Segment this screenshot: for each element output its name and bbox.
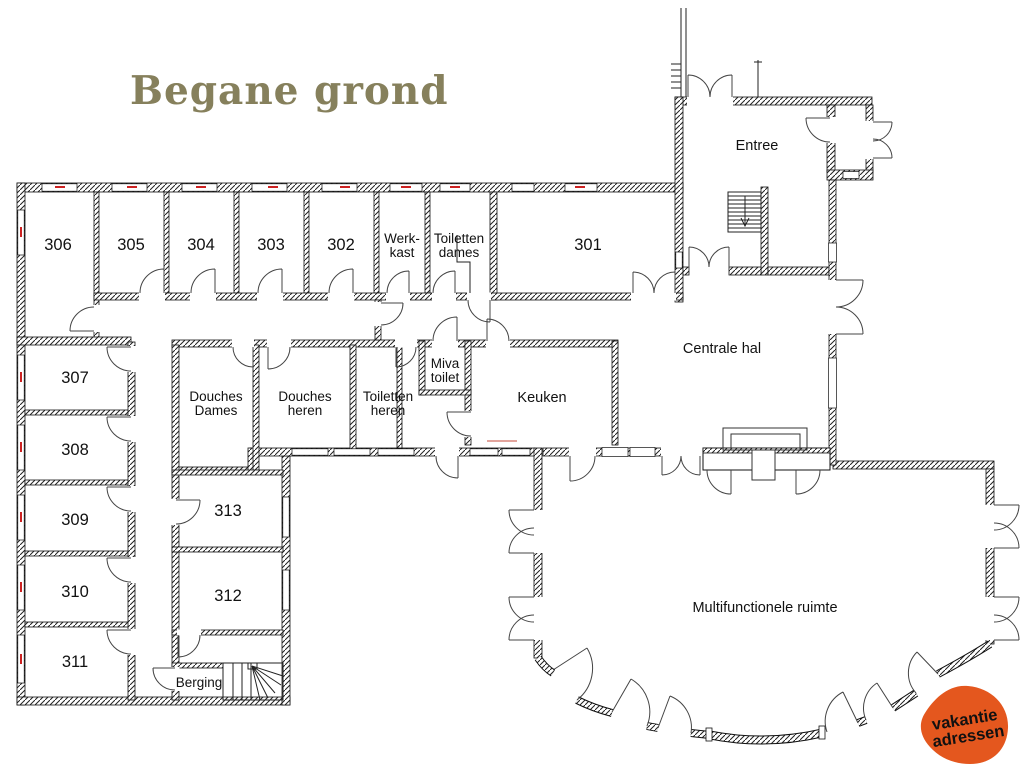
label-entree: Entree — [736, 138, 779, 154]
label-room-310: 310 — [61, 583, 89, 601]
label-room-301: 301 — [574, 236, 602, 254]
room-labels: 306 305 304 303 302 301 Werk- kast Toile… — [44, 138, 837, 690]
label-room-307: 307 — [61, 369, 89, 387]
label-keuken: Keuken — [517, 390, 566, 406]
label-centrale-hal: Centrale hal — [683, 341, 761, 357]
label-toiletten-dames-2: dames — [439, 245, 480, 260]
label-toiletten-dames-1: Toiletten — [434, 231, 484, 246]
label-berging: Berging — [176, 675, 223, 690]
label-room-303: 303 — [257, 236, 285, 254]
window-marks — [21, 187, 585, 664]
label-room-306: 306 — [44, 236, 72, 254]
label-werkkast-1: Werk- — [384, 231, 420, 246]
spiral-staircase — [223, 663, 283, 700]
label-room-309: 309 — [61, 511, 89, 529]
page-title: Begane grond — [130, 68, 449, 114]
label-room-312: 312 — [214, 587, 242, 605]
vakantieadressen-logo: vakantie adressen — [914, 684, 1016, 768]
label-douches-dames-2: Dames — [195, 403, 238, 418]
label-douches-heren-1: Douches — [278, 389, 332, 404]
label-miva-1: Miva — [431, 356, 460, 371]
label-room-305: 305 — [117, 236, 145, 254]
label-miva-2: toilet — [431, 370, 460, 385]
floor-plan-page: Begane grond — [0, 0, 1024, 768]
label-douches-dames-1: Douches — [189, 389, 243, 404]
label-toiletten-heren-2: heren — [371, 403, 406, 418]
label-werkkast-2: kast — [390, 245, 415, 260]
label-room-308: 308 — [61, 441, 89, 459]
floor-plan: 306 305 304 303 302 301 Werk- kast Toile… — [0, 0, 1024, 768]
section-markers — [671, 8, 762, 97]
label-room-311: 311 — [62, 653, 88, 671]
label-room-304: 304 — [187, 236, 215, 254]
walls — [17, 97, 994, 705]
label-room-313: 313 — [214, 502, 242, 520]
staircase — [728, 192, 761, 232]
label-multifunctionele-ruimte: Multifunctionele ruimte — [692, 600, 837, 616]
label-douches-heren-2: heren — [288, 403, 323, 418]
label-room-302: 302 — [327, 236, 355, 254]
label-toiletten-heren-1: Toiletten — [363, 389, 413, 404]
